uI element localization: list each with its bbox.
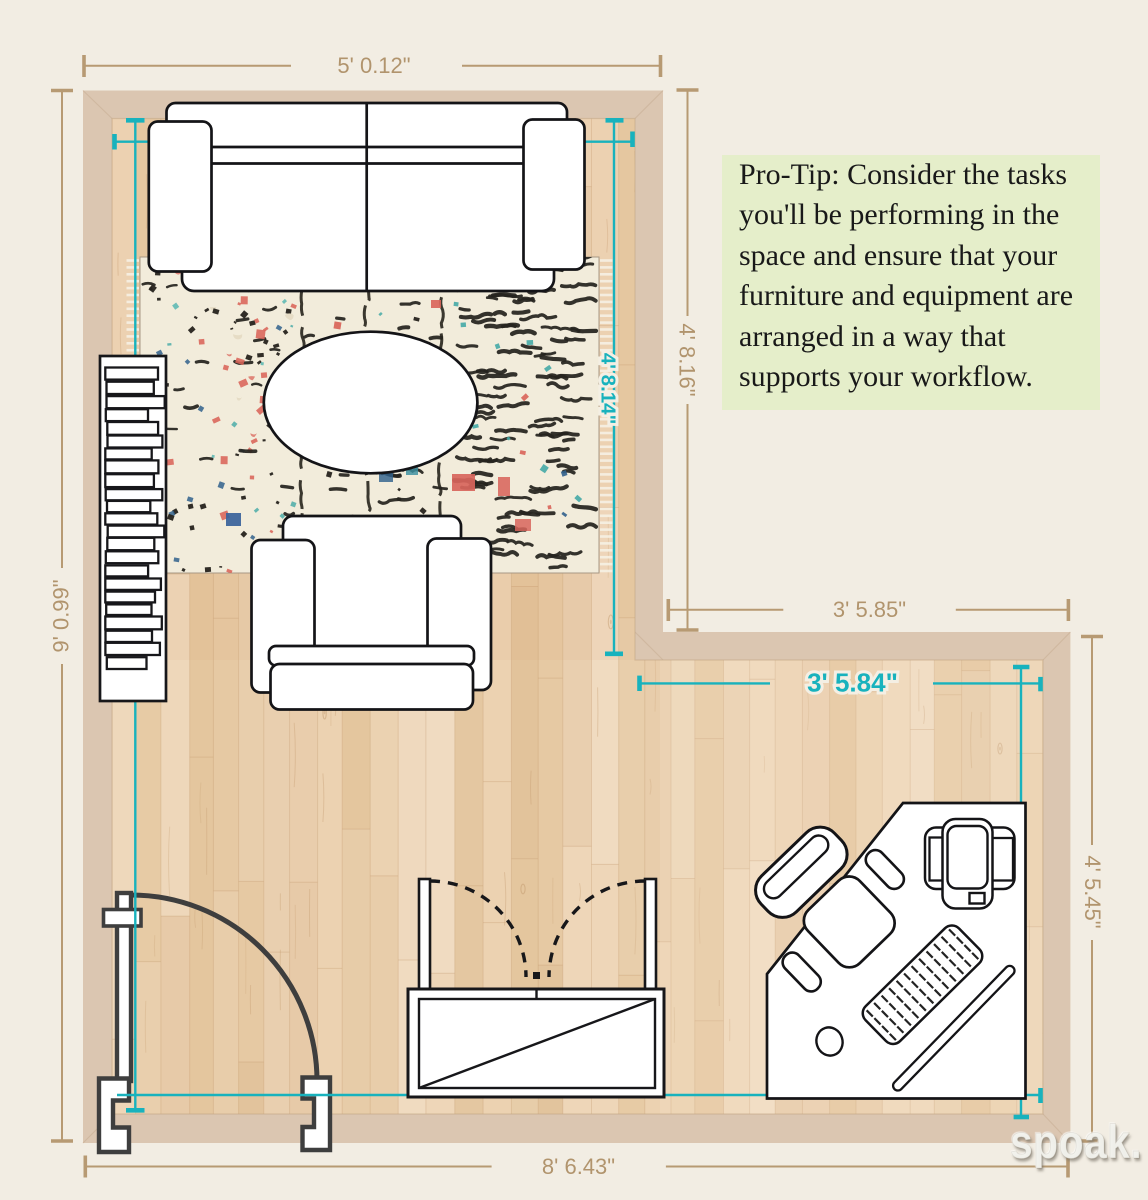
svg-text:4' 8.16": 4' 8.16" bbox=[675, 323, 700, 396]
svg-text:3' 5.85": 3' 5.85" bbox=[833, 597, 906, 622]
svg-text:9' 0.99": 9' 0.99" bbox=[49, 579, 74, 652]
svg-text:8' 6.43": 8' 6.43" bbox=[542, 1154, 615, 1179]
svg-text:3' 5.84": 3' 5.84" bbox=[807, 668, 898, 698]
svg-text:4' 8.14": 4' 8.14" bbox=[597, 353, 620, 425]
svg-text:5' 0.12": 5' 0.12" bbox=[337, 53, 410, 78]
svg-text:4' 5.45": 4' 5.45" bbox=[1080, 855, 1105, 928]
